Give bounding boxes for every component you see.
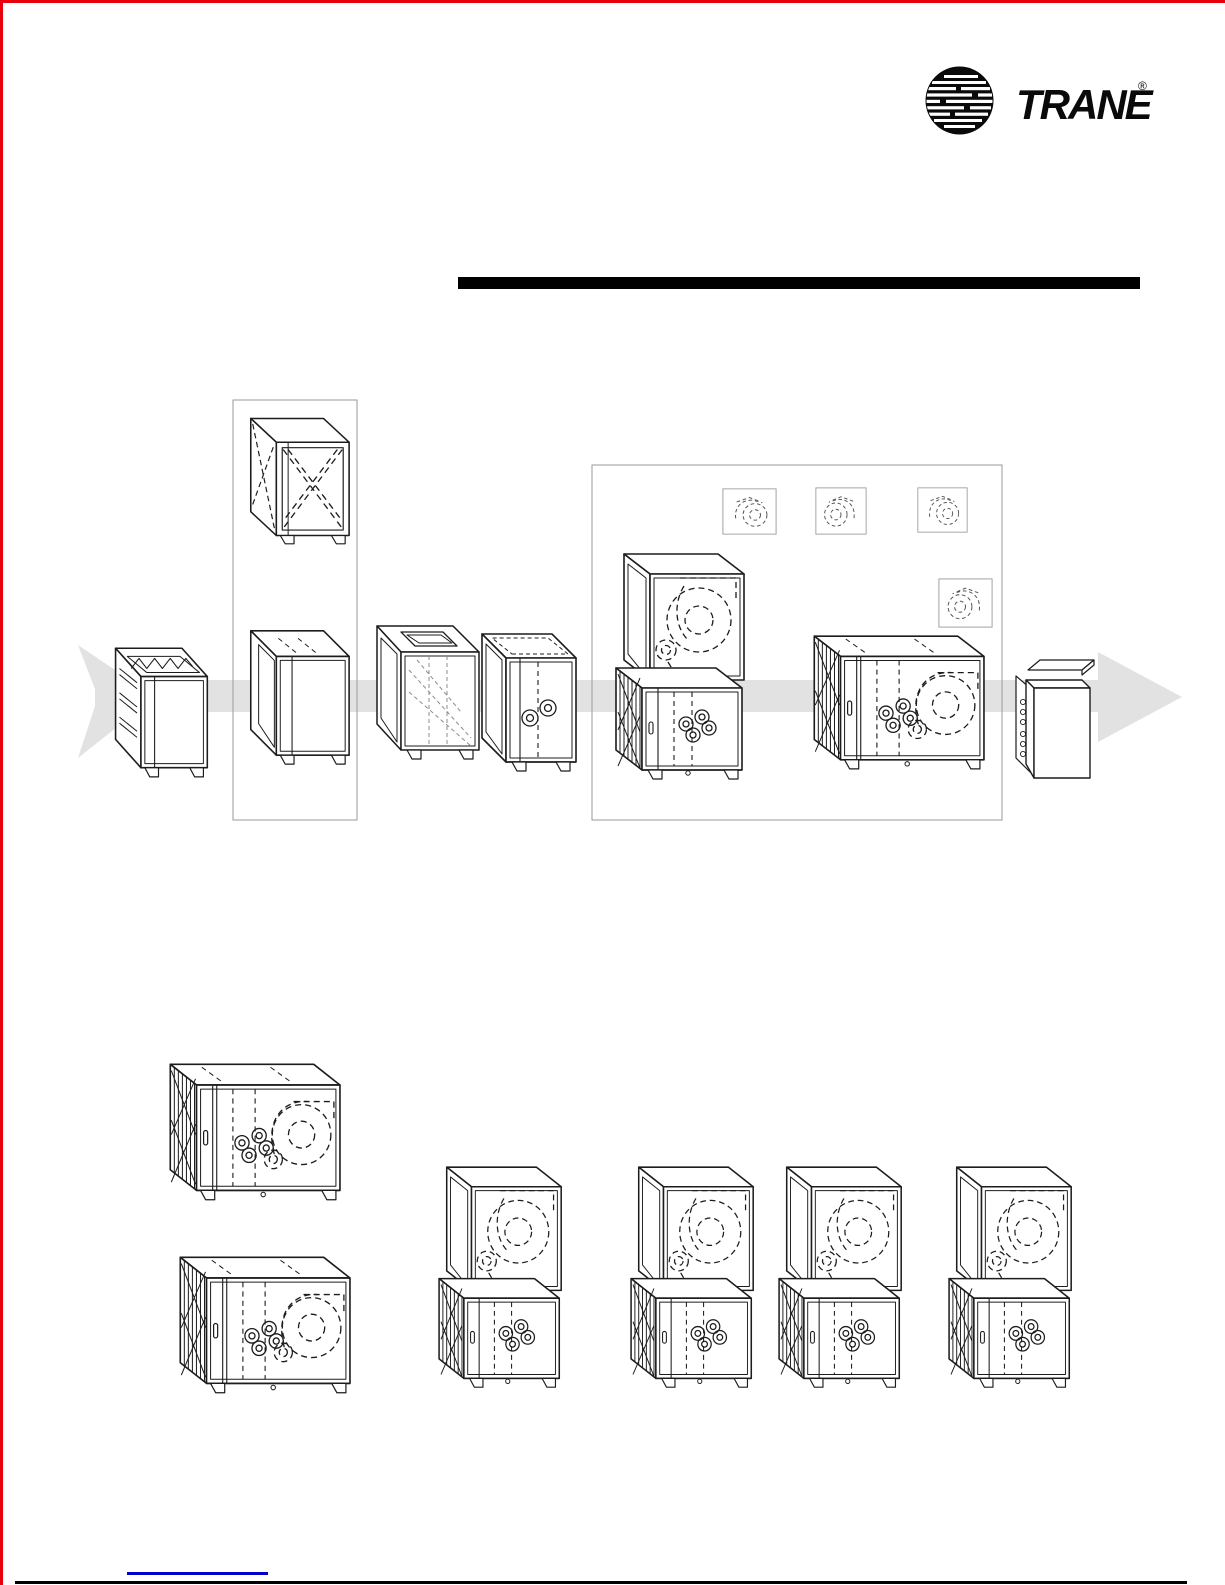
config-drawing-horizontal-unit-2 [180,1257,350,1392]
brand-wordmark: TRANE [1016,81,1155,128]
module-drawing-stacked-blower-unit [616,554,744,779]
footer-link-underline[interactable] [127,1572,268,1575]
module-drawing-open-frame-xbrace [251,418,349,543]
registered-mark: ® [1138,79,1147,93]
module-drawing-horizontal-ahu [814,636,984,769]
flow-arrow-head [1098,652,1182,742]
module-drawing-filter-cassette [116,648,208,777]
config-drawing-stacked-unit-2 [631,1167,753,1387]
blower-option-icon-1 [723,489,776,534]
unit-configurations-diagram [0,1020,1225,1420]
blower-option-icon-4 [939,579,992,627]
module-drawing-top-opening-cabinet [377,626,479,759]
config-drawing-stacked-unit-1 [439,1167,561,1387]
config-drawing-stacked-unit-3 [779,1167,901,1387]
module-drawing-plain-cabinet [251,631,349,764]
brand-logo: TRANE ® [920,62,1160,146]
page-bottom-rule [15,1581,1187,1584]
module-drawing-coil-cabinet [482,634,576,771]
blower-option-icon-2 [816,488,866,534]
config-drawing-horizontal-unit-1 [170,1064,340,1199]
trane-globe-icon: TRANE ® [920,62,1160,146]
title-rule [458,277,1140,289]
module-drawing-control-box [1016,660,1094,778]
blower-option-icon-3 [918,488,967,532]
catalog-page: TRANE ® [0,0,1225,1585]
product-flow-diagram [0,380,1225,840]
config-drawing-stacked-unit-4 [949,1167,1071,1387]
page-border-top [0,0,1225,3]
